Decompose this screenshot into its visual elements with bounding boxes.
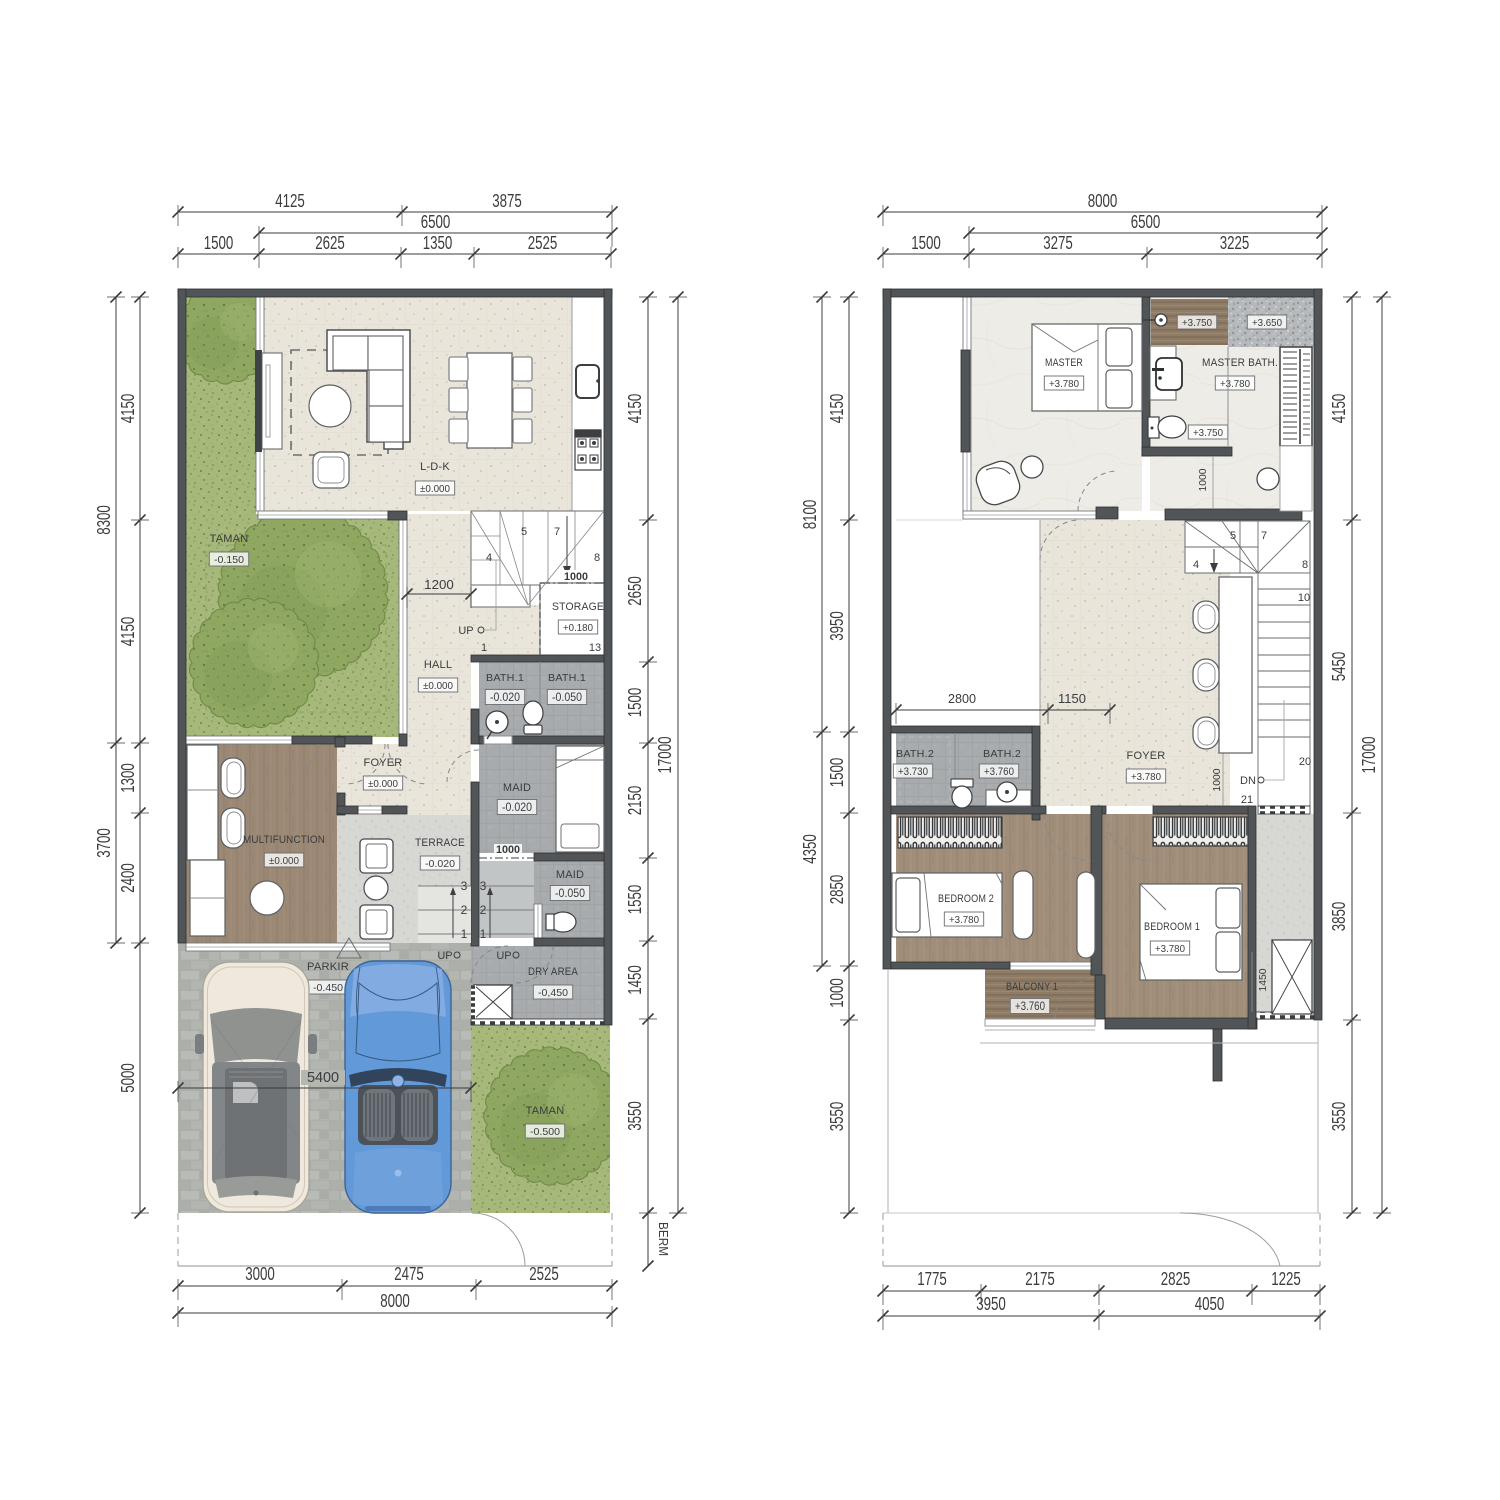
svg-text:3700: 3700 bbox=[94, 828, 114, 858]
svg-text:4350: 4350 bbox=[800, 834, 820, 864]
svg-text:3550: 3550 bbox=[625, 1101, 645, 1131]
svg-text:21: 21 bbox=[1241, 794, 1253, 806]
svg-text:FOYER: FOYER bbox=[1127, 750, 1166, 762]
svg-text:+3.780: +3.780 bbox=[949, 914, 979, 926]
svg-text:8300: 8300 bbox=[94, 505, 114, 535]
svg-text:+3.760: +3.760 bbox=[1015, 1001, 1045, 1013]
svg-text:TERRACE: TERRACE bbox=[415, 837, 465, 849]
svg-text:DN: DN bbox=[1240, 775, 1256, 787]
svg-text:8: 8 bbox=[1302, 559, 1308, 571]
svg-text:MAID: MAID bbox=[503, 782, 531, 794]
svg-text:17000: 17000 bbox=[655, 737, 675, 774]
svg-text:2850: 2850 bbox=[827, 875, 847, 905]
svg-text:1200: 1200 bbox=[424, 577, 454, 592]
svg-text:2: 2 bbox=[480, 903, 487, 917]
svg-text:BERM: BERM bbox=[656, 1222, 671, 1256]
svg-text:7: 7 bbox=[554, 526, 560, 538]
svg-text:1550: 1550 bbox=[625, 885, 645, 915]
svg-text:1450: 1450 bbox=[625, 965, 645, 995]
svg-text:1500: 1500 bbox=[625, 688, 645, 718]
svg-text:4125: 4125 bbox=[275, 191, 305, 211]
svg-text:BEDROOM 1: BEDROOM 1 bbox=[1144, 921, 1200, 933]
svg-text:4150: 4150 bbox=[118, 394, 138, 424]
svg-text:1350: 1350 bbox=[423, 233, 453, 253]
svg-text:-0.020: -0.020 bbox=[502, 802, 532, 814]
svg-text:UP: UP bbox=[437, 950, 452, 962]
svg-text:5: 5 bbox=[521, 526, 527, 538]
svg-text:BATH.2: BATH.2 bbox=[896, 748, 934, 760]
svg-text:-0.050: -0.050 bbox=[555, 888, 585, 900]
svg-text:+3.780: +3.780 bbox=[1131, 771, 1161, 783]
svg-text:PARKIR: PARKIR bbox=[307, 961, 349, 973]
svg-text:4150: 4150 bbox=[1329, 394, 1349, 424]
svg-text:3950: 3950 bbox=[827, 611, 847, 641]
svg-text:3875: 3875 bbox=[492, 191, 522, 211]
svg-text:-0.150: -0.150 bbox=[214, 554, 244, 566]
svg-text:+3.780: +3.780 bbox=[1155, 943, 1185, 955]
svg-text:4050: 4050 bbox=[1195, 1294, 1225, 1314]
svg-text:+3.780: +3.780 bbox=[1220, 378, 1250, 390]
svg-text:-0.050: -0.050 bbox=[552, 692, 582, 704]
svg-text:±0.000: ±0.000 bbox=[269, 855, 299, 867]
svg-text:MAID: MAID bbox=[556, 869, 584, 881]
svg-text:+3.780: +3.780 bbox=[1049, 378, 1079, 390]
svg-text:1500: 1500 bbox=[911, 233, 941, 253]
svg-text:-0.020: -0.020 bbox=[490, 692, 520, 704]
svg-text:2400: 2400 bbox=[118, 863, 138, 893]
svg-text:3000: 3000 bbox=[245, 1264, 275, 1284]
svg-text:1225: 1225 bbox=[1271, 1269, 1301, 1289]
svg-text:3225: 3225 bbox=[1220, 233, 1250, 253]
svg-text:±0.000: ±0.000 bbox=[420, 483, 450, 495]
svg-text:5450: 5450 bbox=[1329, 652, 1349, 682]
svg-text:17000: 17000 bbox=[1359, 737, 1379, 774]
svg-text:6500: 6500 bbox=[1131, 212, 1161, 232]
svg-text:BATH.2: BATH.2 bbox=[983, 748, 1021, 760]
svg-text:4: 4 bbox=[1193, 559, 1199, 571]
svg-text:1500: 1500 bbox=[827, 758, 847, 788]
svg-text:20: 20 bbox=[1299, 756, 1311, 768]
svg-text:+3.730: +3.730 bbox=[898, 766, 928, 778]
svg-text:UP: UP bbox=[496, 950, 511, 962]
svg-text:2175: 2175 bbox=[1025, 1269, 1055, 1289]
svg-text:6500: 6500 bbox=[421, 212, 451, 232]
svg-text:±0.000: ±0.000 bbox=[368, 778, 398, 790]
svg-text:1000: 1000 bbox=[827, 978, 847, 1008]
svg-text:1: 1 bbox=[461, 927, 468, 941]
svg-text:2475: 2475 bbox=[394, 1264, 424, 1284]
svg-text:3: 3 bbox=[461, 879, 468, 893]
svg-text:8: 8 bbox=[594, 552, 600, 564]
svg-text:STORAGE: STORAGE bbox=[552, 601, 604, 613]
svg-text:2525: 2525 bbox=[528, 233, 558, 253]
svg-text:+3.750: +3.750 bbox=[1193, 427, 1223, 439]
svg-text:10: 10 bbox=[1298, 592, 1310, 604]
svg-text:-0.500: -0.500 bbox=[530, 1126, 560, 1138]
svg-text:BATH.1: BATH.1 bbox=[548, 672, 586, 684]
svg-text:MULTIFUNCTION: MULTIFUNCTION bbox=[243, 834, 325, 846]
svg-text:2150: 2150 bbox=[625, 786, 645, 816]
svg-text:2650: 2650 bbox=[625, 576, 645, 606]
svg-text:1000: 1000 bbox=[496, 844, 520, 856]
svg-text:2800: 2800 bbox=[948, 691, 976, 706]
svg-text:5: 5 bbox=[1230, 530, 1236, 542]
svg-text:8100: 8100 bbox=[800, 500, 820, 530]
svg-text:BATH.1: BATH.1 bbox=[486, 672, 524, 684]
svg-text:5000: 5000 bbox=[118, 1063, 138, 1093]
svg-text:3550: 3550 bbox=[827, 1102, 847, 1132]
svg-text:BALCONY 1: BALCONY 1 bbox=[1006, 981, 1058, 993]
svg-text:4150: 4150 bbox=[625, 394, 645, 424]
svg-text:13: 13 bbox=[589, 642, 601, 654]
svg-text:3: 3 bbox=[480, 879, 487, 893]
svg-text:2625: 2625 bbox=[315, 233, 345, 253]
svg-text:+3.750: +3.750 bbox=[1182, 317, 1212, 329]
svg-text:7: 7 bbox=[1261, 530, 1267, 542]
svg-text:1300: 1300 bbox=[118, 763, 138, 793]
svg-text:MASTER: MASTER bbox=[1045, 357, 1083, 369]
svg-text:1000: 1000 bbox=[1197, 468, 1209, 491]
svg-text:8000: 8000 bbox=[1088, 191, 1118, 211]
svg-text:HALL: HALL bbox=[424, 659, 452, 671]
svg-text:BEDROOM 2: BEDROOM 2 bbox=[938, 893, 994, 905]
svg-text:1150: 1150 bbox=[1058, 691, 1086, 706]
svg-text:-0.450: -0.450 bbox=[313, 982, 343, 994]
svg-text:TAMAN: TAMAN bbox=[210, 533, 249, 545]
svg-text:DRY AREA: DRY AREA bbox=[528, 966, 578, 978]
svg-text:-0.020: -0.020 bbox=[425, 858, 455, 870]
svg-text:L-D-K: L-D-K bbox=[420, 461, 450, 473]
svg-text:±0.000: ±0.000 bbox=[423, 680, 453, 692]
svg-text:3950: 3950 bbox=[976, 1294, 1006, 1314]
svg-text:+3.650: +3.650 bbox=[1252, 317, 1282, 329]
svg-text:+0.180: +0.180 bbox=[563, 622, 593, 634]
svg-text:1000: 1000 bbox=[1211, 768, 1223, 791]
svg-text:3275: 3275 bbox=[1043, 233, 1073, 253]
svg-text:FOYER: FOYER bbox=[364, 757, 403, 769]
svg-text:+3.760: +3.760 bbox=[984, 766, 1014, 778]
svg-text:1000: 1000 bbox=[564, 571, 588, 583]
svg-text:3850: 3850 bbox=[1329, 902, 1349, 932]
svg-text:5400: 5400 bbox=[307, 1069, 339, 1086]
svg-text:1: 1 bbox=[481, 642, 487, 654]
svg-text:2825: 2825 bbox=[1161, 1269, 1191, 1289]
svg-text:TAMAN: TAMAN bbox=[526, 1105, 565, 1117]
svg-text:4150: 4150 bbox=[827, 394, 847, 424]
svg-text:2525: 2525 bbox=[529, 1264, 559, 1284]
svg-text:-0,450: -0,450 bbox=[538, 987, 568, 999]
svg-text:1500: 1500 bbox=[204, 233, 234, 253]
svg-text:3550: 3550 bbox=[1329, 1102, 1349, 1132]
svg-text:MASTER BATH.: MASTER BATH. bbox=[1202, 357, 1278, 369]
svg-text:2: 2 bbox=[461, 903, 468, 917]
svg-text:1: 1 bbox=[480, 927, 487, 941]
svg-text:4150: 4150 bbox=[118, 617, 138, 647]
svg-text:1775: 1775 bbox=[917, 1269, 947, 1289]
svg-text:1450: 1450 bbox=[1257, 968, 1269, 991]
svg-text:8000: 8000 bbox=[380, 1291, 410, 1311]
svg-text:4: 4 bbox=[486, 552, 492, 564]
svg-text:UP: UP bbox=[458, 625, 473, 637]
